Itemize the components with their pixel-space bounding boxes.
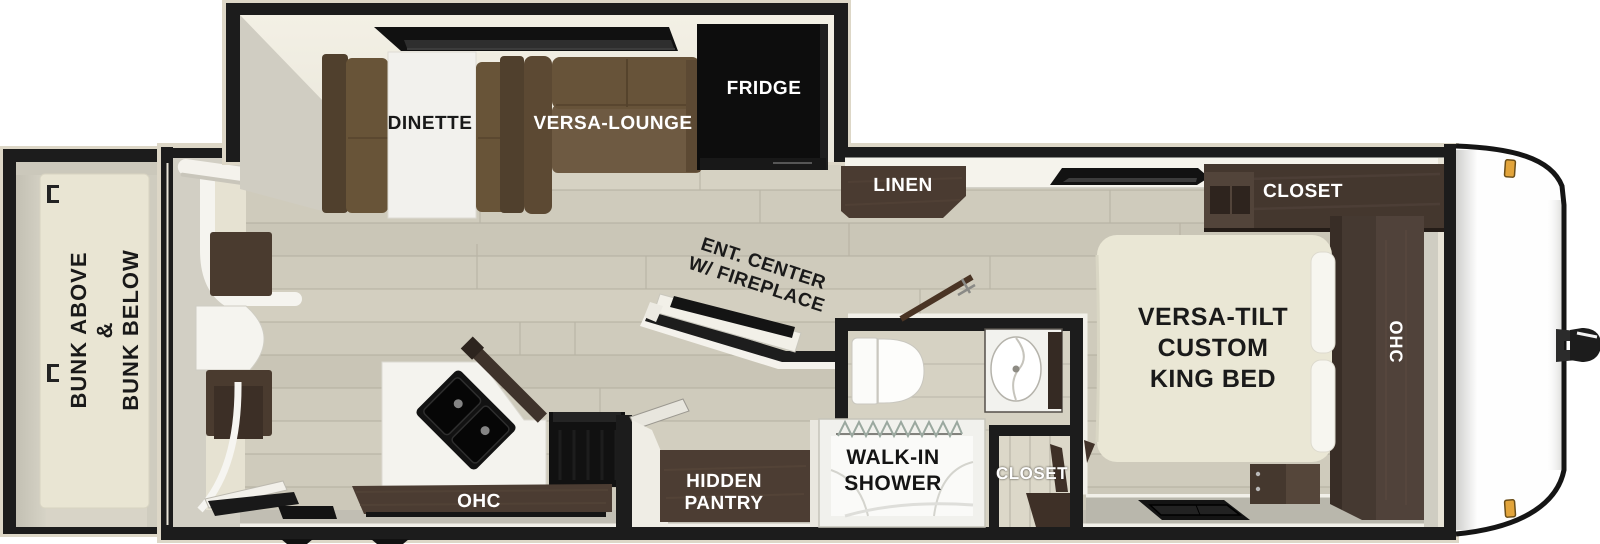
svg-text:DINETTE: DINETTE <box>388 113 473 134</box>
svg-text:FRIDGE: FRIDGE <box>727 78 802 99</box>
svg-text:CLOSET: CLOSET <box>996 464 1068 483</box>
svg-text:OHC: OHC <box>1386 321 1406 364</box>
svg-text:VERSA-LOUNGE: VERSA-LOUNGE <box>533 113 692 134</box>
svg-text:HIDDEN: HIDDEN <box>686 471 762 492</box>
svg-text:LINEN: LINEN <box>873 175 933 196</box>
svg-text:CUSTOM: CUSTOM <box>1158 334 1269 362</box>
svg-text:WALK-IN: WALK-IN <box>846 446 939 469</box>
svg-text:BUNK ABOVE: BUNK ABOVE <box>66 251 91 408</box>
svg-text:CLOSET: CLOSET <box>1263 181 1343 202</box>
svg-text:VERSA-TILT: VERSA-TILT <box>1138 303 1288 331</box>
svg-text:SHOWER: SHOWER <box>844 472 942 495</box>
svg-text:PANTRY: PANTRY <box>685 493 764 514</box>
svg-text:BUNK BELOW: BUNK BELOW <box>118 249 143 411</box>
svg-text:KING BED: KING BED <box>1150 365 1276 393</box>
svg-text:OHC: OHC <box>457 491 501 512</box>
svg-text:&: & <box>92 322 117 339</box>
